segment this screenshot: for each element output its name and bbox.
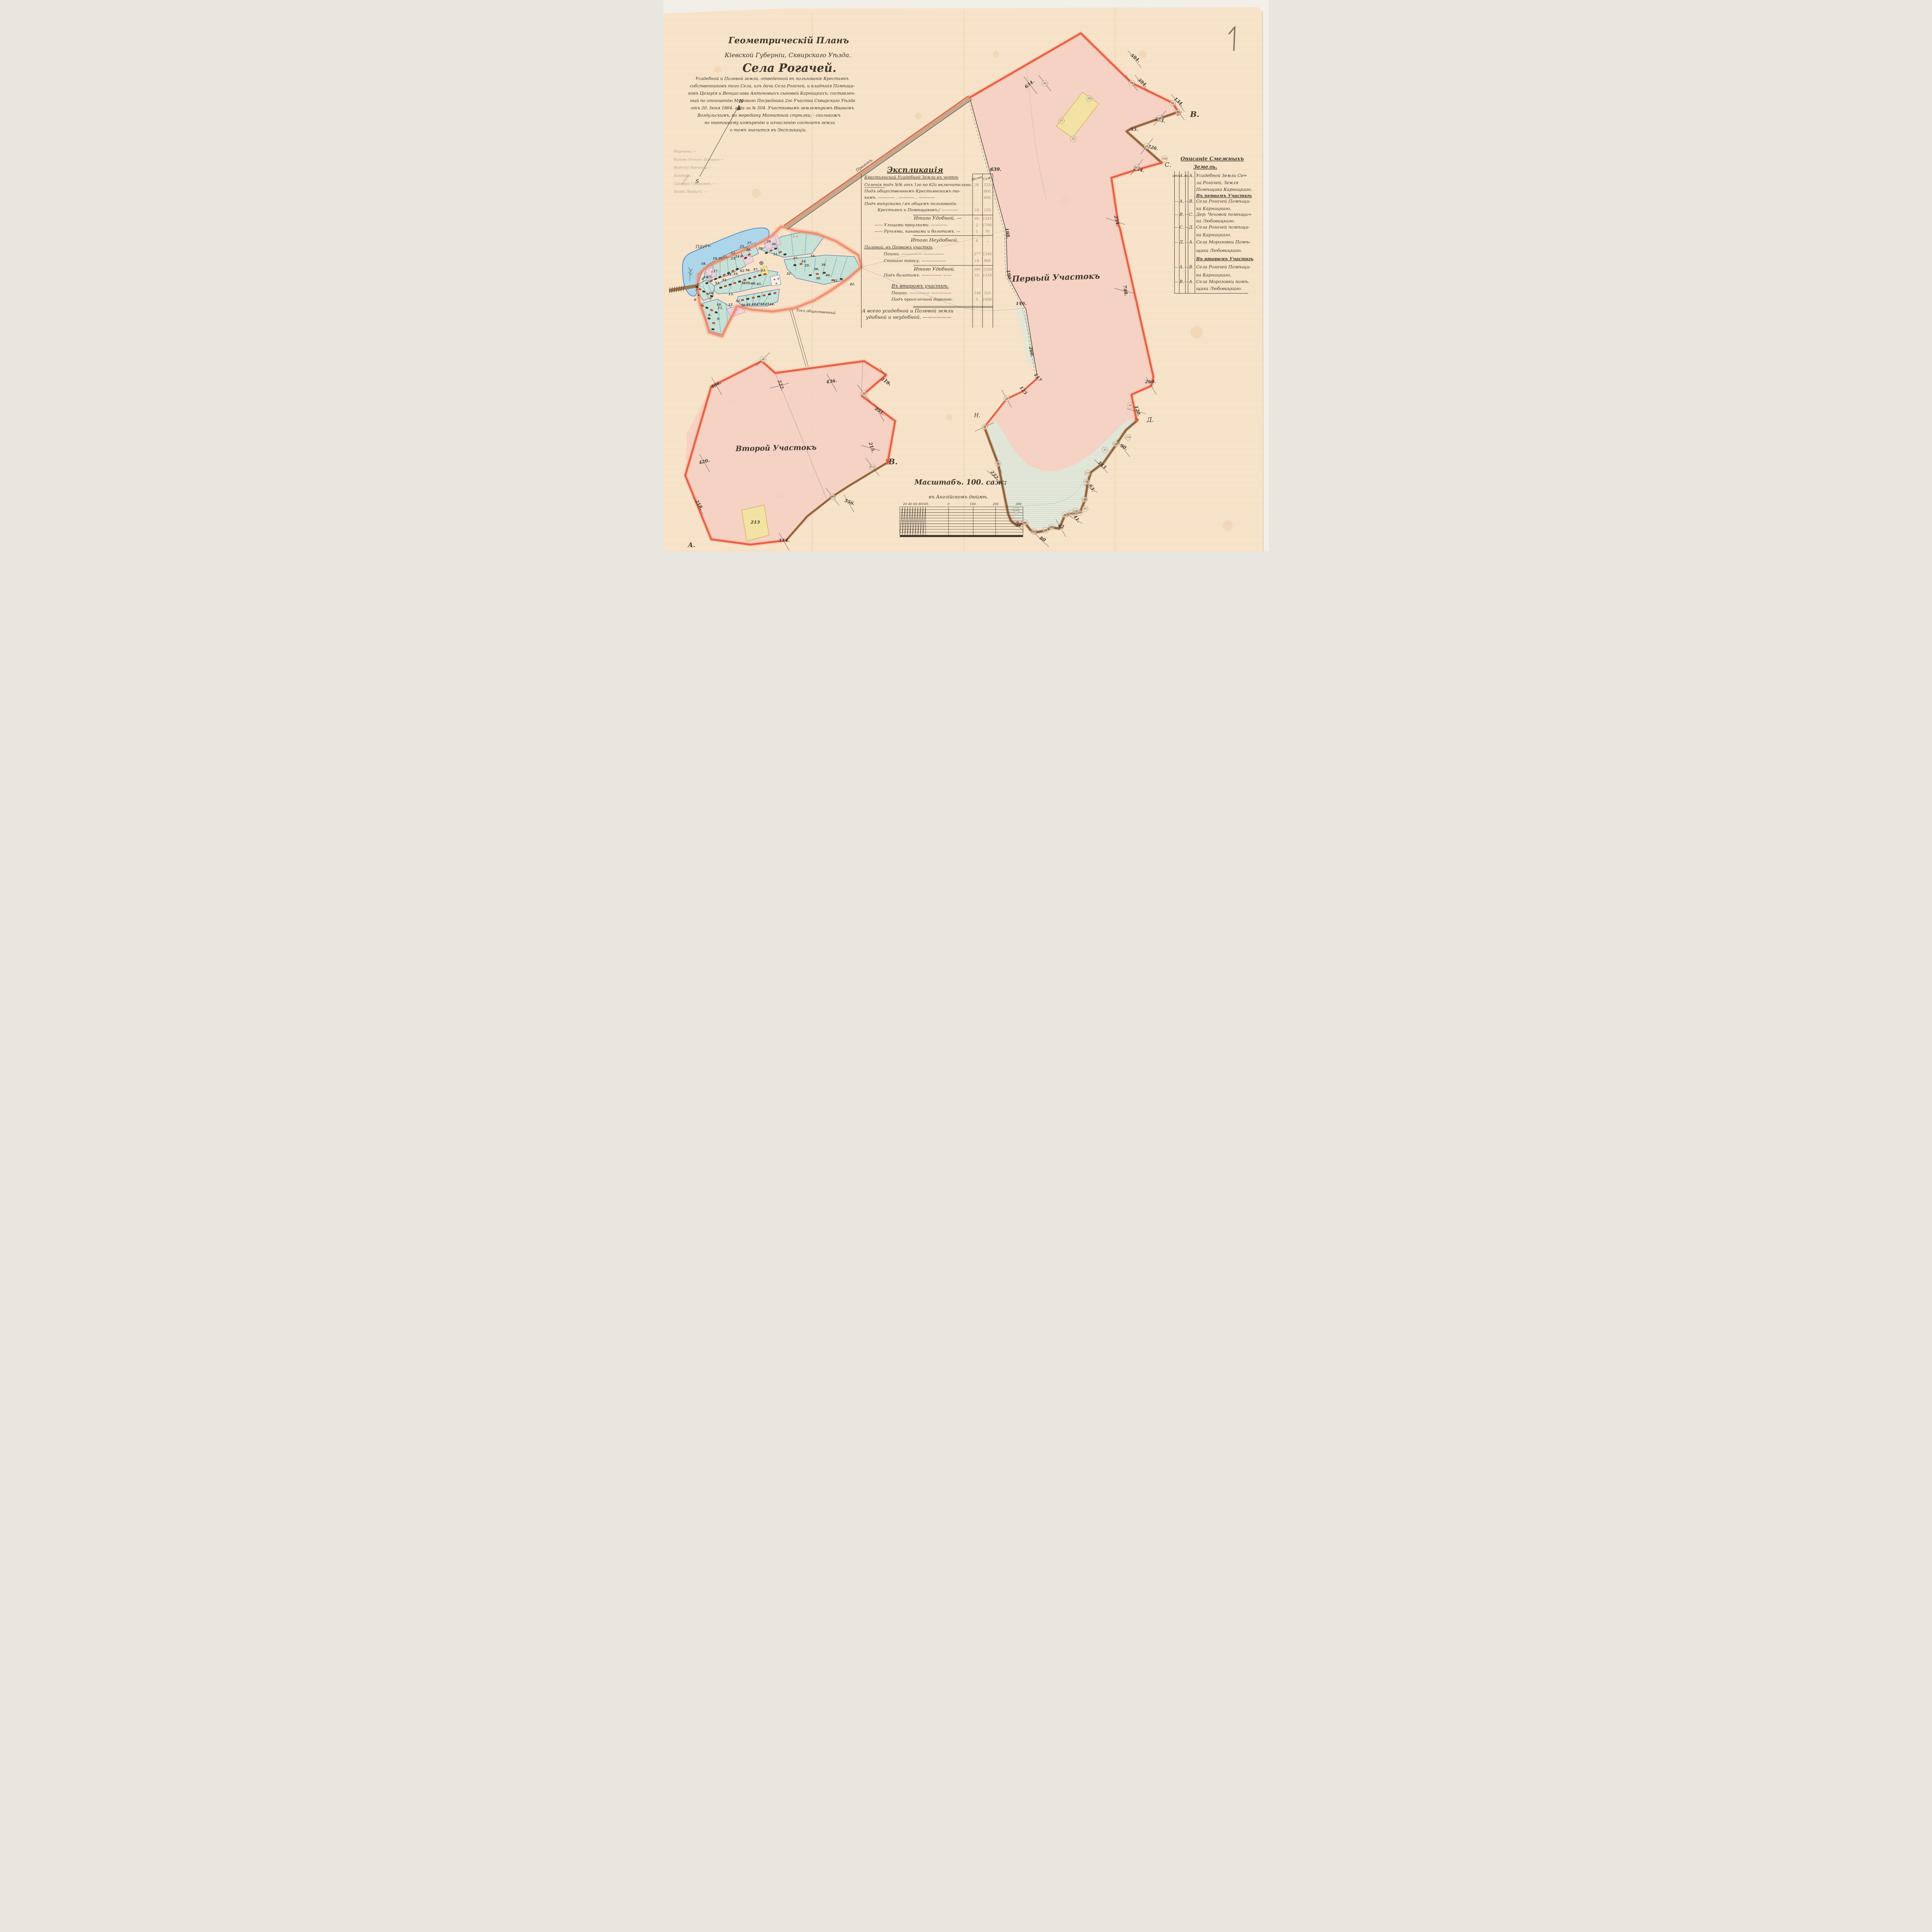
scalebar-title: Масштабъ. 100. саж: <box>914 478 1007 486</box>
vertex-number: 159 <box>1113 442 1118 446</box>
village-parcel-number: 61. <box>757 282 762 286</box>
vertex-number: 155 <box>1126 436 1130 439</box>
vertex-number: 58 <box>1145 145 1148 148</box>
boundary-measurement: 146. <box>1015 301 1026 306</box>
map-label: В. <box>1190 109 1199 119</box>
vertex-number: 78 <box>983 425 986 429</box>
village-parcel-number: 4. <box>697 293 701 297</box>
explication-value-sazhen: 70. <box>985 230 990 234</box>
explication-row-label: Подъ выпусками /.въ общемъ пользованіи <box>864 201 956 206</box>
explication-value-desyatina: 10. <box>975 274 980 278</box>
map-label: С. <box>1165 161 1171 168</box>
scalebar-tick-label: 80 <box>918 502 922 506</box>
vertex-number: 26½ <box>829 495 835 498</box>
title-paragraph-line: Воздульскимъ, по мередіану Магнитной стр… <box>697 113 840 118</box>
title-paragraph-line: ный по отношенію Мирового Посредника 2го… <box>690 98 855 103</box>
map-label: N <box>738 99 743 104</box>
vertex-number: 148 <box>1068 512 1073 515</box>
adjacent-description-line: щика Любовицкаго. <box>1196 286 1242 291</box>
adjacent-boundary-letter: до <box>1184 174 1188 178</box>
map-label: В. <box>888 457 898 466</box>
vertex-number: 163 <box>1014 509 1018 512</box>
church-cross-icon: ✚ <box>760 262 762 265</box>
scalebar-subtitle: въ Англійскомъ дюймѣ. <box>929 494 988 500</box>
village-parcel-number: 39. <box>821 263 827 267</box>
village-parcel-number: 3 <box>695 287 697 291</box>
adjacent-description-line: Села Рогачей Помѣщи- <box>1196 264 1251 269</box>
adjacent-boundary-letter: В. <box>1189 199 1194 204</box>
title-paragraph-line: по нынѣшнему измѣренію и изчисленію сост… <box>704 120 835 125</box>
building-black <box>840 278 843 280</box>
village-parcel-number: 36. <box>814 267 819 271</box>
village-parcel-number: 21. <box>722 255 728 259</box>
adjacent-boundary-letter: Д. <box>1179 240 1184 245</box>
explication-value-desyatina: 2. <box>975 223 979 228</box>
scalebar-tick-label: 40 <box>907 502 912 506</box>
adjacent-boundary-letter: — <box>1174 241 1178 245</box>
vertex-number: 49 <box>1043 529 1047 532</box>
explication-row-label: А всего усадебной и Полевой земли <box>862 308 954 313</box>
title-paragraph-line: отъ 20. Іюня 1864. года за № 504. Участк… <box>691 105 854 111</box>
village-parcel-number: 27. <box>747 241 752 245</box>
village-parcel-number: 24. <box>735 255 740 259</box>
vertex-number: 32 <box>1103 449 1106 452</box>
village-parcel-number: 11. <box>718 306 723 310</box>
adjacent-boundary-letter: С. <box>1189 212 1194 217</box>
vertex-number: 31½ <box>1134 166 1139 169</box>
explication-row-label: Итого Неудобной. <box>910 237 958 243</box>
explication-row-label: Подъ общественнымъ Крестьянскимъ то- <box>864 189 960 194</box>
explication-value-desyatina: 46. <box>974 216 980 221</box>
village-parcel-number: 12. <box>728 303 733 306</box>
map-label: А. <box>687 541 695 549</box>
village-parcel-number: 57. <box>753 267 759 271</box>
scalebar-tick-label: 100. <box>969 502 976 506</box>
village-parcel-number: 33. <box>801 259 806 263</box>
vertex-number: 62 <box>1171 102 1174 105</box>
boundary-measurement: 213 <box>750 519 760 525</box>
village-parcel-number: 14. <box>709 291 714 295</box>
village-parcel-number: 25. <box>739 245 745 248</box>
explication-value-sazhen: 525. <box>984 183 992 187</box>
explication-row-label: Въ второмъ участкѣ. <box>891 283 949 289</box>
explication-row-label: Итого Удобной. <box>913 266 955 272</box>
boundary-measurement: 45. <box>1130 126 1138 132</box>
explication-row-label: Сѣннаго покосу. —————— <box>884 259 946 263</box>
map-canvas: +++ ✚ ××××× × <box>663 0 1269 551</box>
explication-value-sazhen: 120. <box>984 208 992 212</box>
village-parcel-number: 52. <box>715 281 720 285</box>
pencil-note-line: Федоско Новчинка — <box>674 166 712 170</box>
explication-value-desyatina: 1. <box>976 230 979 234</box>
adjacent-boundary-letter: — <box>1184 280 1188 284</box>
village-parcel-number: 51. <box>735 299 741 303</box>
vertex-number: 32 <box>1071 138 1075 141</box>
adjacent-description-line: ка Любовицкаго. <box>1196 219 1235 224</box>
vertex-number: 144 <box>1082 498 1087 501</box>
adjacent-description-line: ка Карницкаго. <box>1196 272 1231 277</box>
explication-row-label: Селенія подъ №№ отъ 1го по 62й включител… <box>864 183 972 187</box>
adjacent-boundary-letter: отъ <box>1172 174 1180 178</box>
map-title-line3: Села Рогачей. <box>742 61 836 75</box>
adjacent-title-line1: Описаніе Смежныхъ <box>1180 156 1244 162</box>
adjacent-boundary-letter: — <box>1174 265 1178 269</box>
map-label: Второй Участокъ <box>735 443 816 453</box>
title-paragraph-line: Усадебной и Полевой земли, отведенной въ… <box>696 76 849 81</box>
village-parcel-number: 50. <box>741 303 746 307</box>
village-parcel-number: 31. <box>773 252 778 256</box>
scalebar-base-band <box>900 535 1023 537</box>
vertex-number: 91½ <box>869 466 875 469</box>
svg-text:+: + <box>775 281 777 285</box>
village-parcel-number: 60. <box>751 281 756 285</box>
adjacent-boundary-letter: А. <box>1179 173 1184 178</box>
adjacent-boundary-letter: В. <box>1179 212 1184 217</box>
adjacent-boundary-letter: — <box>1184 213 1188 217</box>
vertex-number: 52 <box>862 392 865 395</box>
vertex-number: 29 <box>1043 82 1046 85</box>
village-parcel-number: 48. <box>752 302 757 306</box>
building-red <box>831 279 834 281</box>
adjacent-boundary-letter: А. <box>1189 279 1194 284</box>
village-parcel-number: 62 <box>740 269 745 273</box>
village-parcel-number: 9. <box>717 317 720 321</box>
pencil-note-line: Марченка — <box>673 150 697 154</box>
vertex-number: 32 <box>1060 119 1063 122</box>
explication-row-label: Подъ болотомъ. ————— —— <box>883 273 952 278</box>
village-parcel-number: 58 <box>741 281 746 285</box>
explication-row-label: Крестьянской Усадебной Земли въ чертѣ <box>864 175 958 180</box>
village-parcel-number: 18. <box>701 262 706 265</box>
village-parcel-number: 19. <box>713 257 718 260</box>
explication-value-desyatina: 5. <box>976 298 979 302</box>
vertex-number: 119 <box>1085 471 1090 474</box>
adjacent-section-header: Въ первомъ Участкѣ <box>1196 193 1252 198</box>
explication-value-desyatina: 4. <box>975 238 979 243</box>
adjacent-description-line: ка Карницкаго. <box>1196 233 1231 238</box>
vertex-number: 59 <box>1083 507 1086 510</box>
adjacent-boundary-letter: А. <box>1179 199 1184 204</box>
map-sheet: +++ ✚ ××××× × <box>663 0 1269 551</box>
vertex-number: 164 <box>1162 157 1167 160</box>
explication-value-sazhen: 1245. <box>983 216 993 221</box>
explication-value-desyatina: 391 <box>974 267 981 272</box>
boundary-measurement: 92 <box>1058 524 1065 530</box>
svg-text:×: × <box>711 270 713 274</box>
vertex-number: 69 <box>997 462 1000 465</box>
svg-text:+: + <box>773 277 776 281</box>
explication-value-desyatina: 36. <box>975 183 980 187</box>
explication-value-sazhen: 1346. <box>983 252 993 256</box>
explication-row-label: Пашни. ————— ————— <box>891 291 952 296</box>
adjacent-description-line: Села Морозовки Помѣ- <box>1196 240 1250 245</box>
explication-title: Экспликація <box>887 165 943 174</box>
village-parcel-number: 40. <box>825 273 831 277</box>
village-parcel-number: 42. <box>850 282 855 286</box>
village-parcel-number: 6 <box>694 298 696 301</box>
map-label: Д. <box>1146 416 1154 423</box>
explication-value-sazhen: „ <box>986 238 988 243</box>
village-parcel-number: 16. <box>703 275 709 279</box>
explication-row-label: Полевой: въ Первомъ участкѣ <box>864 245 932 250</box>
explication-value-sazhen: 900. <box>984 259 992 263</box>
pencil-note-line: Яковъ Лепдулъ. — <box>673 190 707 194</box>
map-title-line2: Кіевской Губерніи, Сквирскаго Уѣзда. <box>724 51 851 59</box>
vertex-number: 96 <box>1085 480 1088 483</box>
explication-row-label: Крестьянъ и Помѣщиковъ./ ———— <box>877 207 958 212</box>
explication-row-label: Подъ проселочной дорогою. <box>891 297 953 302</box>
village-parcel-number: 22 <box>730 251 735 255</box>
svg-text:+: + <box>777 277 779 281</box>
explication-row-label: —— Улицами проулками. ———— <box>874 223 947 228</box>
building-black <box>809 274 812 276</box>
village-parcel-number: 59. <box>745 281 751 285</box>
village-parcel-number: 17. <box>713 269 718 273</box>
adjacent-boundary-letter: — <box>1184 200 1188 204</box>
explication-value-sazhen: 1600. <box>983 298 993 302</box>
map-label: Н. <box>974 413 980 419</box>
explication-row-label: Пашни. ————— ————— <box>883 252 944 256</box>
scalebar-tick-label: 60 <box>913 502 917 506</box>
village-parcel-number: 38. <box>816 276 821 280</box>
village-parcel-number: 43. <box>760 269 766 272</box>
explication-value-sazhen: 1518. <box>983 274 993 278</box>
village-parcel-number: 32. <box>786 272 792 276</box>
village-parcel-number: 55. <box>733 272 738 276</box>
title-paragraph-line: о томъ значится въ Экспликаціи. <box>730 128 807 133</box>
explication-value-desyatina: 377 <box>974 252 981 256</box>
adjacent-boundary-letter: А. <box>1179 264 1184 269</box>
building-black <box>711 328 714 330</box>
map-label: S <box>695 179 699 184</box>
adjacent-boundary-letter: А. <box>1189 173 1194 178</box>
building-black <box>823 272 826 274</box>
vertex-number: 26 <box>1158 117 1161 120</box>
boundary-measurement: 639. <box>990 167 1001 172</box>
explication-row-label: удобной и неудобной. —————— <box>866 314 951 320</box>
explication-row-label: комъ. ———— . ———— . ———— <box>864 195 935 200</box>
explication-row-label: Итого Удобной. — <box>913 215 961 221</box>
adjacent-description-line: Села Морозовки помѣ. <box>1196 279 1249 284</box>
adjacent-description-line: ла Рогачей, Земля <box>1196 180 1238 185</box>
title-paragraph-line: собственниковъ того Села, изъ дачи Села … <box>690 83 855 88</box>
scalebar-tick-label: 20 <box>902 502 906 506</box>
explication-value-sazhen: 1700. <box>983 223 993 228</box>
boundary-measurement: 114. <box>779 537 789 543</box>
adjacent-boundary-letter: — <box>1184 241 1188 245</box>
adjacent-description-line: Села Рогачей помѣщи- <box>1196 225 1250 230</box>
map-title-line1: Геометрическій Планъ <box>728 36 849 46</box>
adjacent-boundary-letter: Д. <box>1188 225 1194 230</box>
explication-row-label: —— Ручьями, канавами и болотомъ. — <box>874 229 961 234</box>
adjacent-description-line: Помѣщика Карницкаго. <box>1196 187 1252 192</box>
vertex-number: 34 <box>1063 514 1066 517</box>
explication-value-sazhen: 310. <box>984 291 992 296</box>
vertex-number: 116 <box>1077 511 1082 514</box>
village-parcel-number: 8. <box>708 313 711 317</box>
adjacent-boundary-letter: — <box>1174 280 1178 284</box>
vertex-number: 59 <box>1087 97 1090 100</box>
explication-value-sazhen: 2246 <box>983 267 992 272</box>
village-parcel-number: 53. <box>722 278 727 282</box>
vertex-number: 38 <box>761 358 764 361</box>
adjacent-description-line: щика Любовицкаго. <box>1196 248 1242 253</box>
vertex-number: 78 <box>1130 82 1133 85</box>
adjacent-boundary-letter: — <box>1174 226 1178 230</box>
scalebar-tick-label: 200 <box>992 502 998 506</box>
building-red <box>816 273 819 275</box>
explication-value-desyatina: 146 <box>974 291 981 296</box>
adjacent-boundary-letter: — <box>1174 200 1178 204</box>
adjacent-boundary-letter: — <box>1174 213 1178 217</box>
vertex-number: 88 <box>1177 111 1180 114</box>
vertex-number: 33 <box>1005 397 1008 400</box>
scalebar-tick-label: 0 <box>947 502 949 506</box>
village-parcel-number: 56. <box>745 268 751 272</box>
village-parcel-number: 35. <box>804 264 810 267</box>
vertex-number: 58 <box>1128 404 1131 407</box>
village-parcel-number: 28. <box>758 247 764 250</box>
village-parcel-number: 37. <box>793 256 798 260</box>
village-parcel-number: 1. <box>697 282 700 286</box>
pencil-note-line: Кузьма Остапъ Шовгунъ — <box>673 158 724 162</box>
adjacent-boundary-letter: С. <box>1179 225 1184 230</box>
boundary-measurement: 260. <box>1145 379 1156 384</box>
village-parcel-number: 5 <box>709 297 711 301</box>
adjacent-description-line: Дер: Чеховой помѣщи= <box>1196 212 1251 217</box>
explication-value-desyatina: 10. <box>975 208 980 212</box>
vertex-number: 135½ <box>1030 530 1037 533</box>
village-parcel-number: 34. <box>810 254 816 258</box>
svg-text:× ×: × × <box>792 235 798 238</box>
explication-value-sazhen: 600. <box>984 189 992 194</box>
vertex-number: 164 <box>1049 526 1054 529</box>
village-parcel-number: 30. <box>771 242 777 246</box>
adjacent-boundary-letter: В. <box>1179 279 1184 284</box>
adjacent-boundary-letter: — <box>1184 226 1188 230</box>
adjacent-title-line2: Земель. <box>1193 164 1217 170</box>
explication-value-desyatina: 14. <box>975 259 980 263</box>
vertex-number: 86 <box>1023 521 1026 524</box>
scalebar-tick-label: 300. <box>1015 502 1022 506</box>
adjacent-boundary-letter: — <box>1184 265 1188 269</box>
scalebar-tick-label: 100. <box>922 502 929 506</box>
adjacent-boundary-letter: А. <box>1189 240 1194 245</box>
village-parcel-number: 29 <box>766 240 771 243</box>
adjacent-description-line: Усадебной Земли Се= <box>1196 173 1247 178</box>
title-paragraph-line: ковъ Цезарія и Венцислава Антоновыхъ сын… <box>688 91 855 96</box>
adjacent-section-header: Въ второмъ Участкѣ <box>1196 256 1253 261</box>
adjacent-description-line: ка Карницкаго. <box>1196 206 1231 211</box>
pencil-note-line: Григорій Гридасюкъ. — <box>673 182 716 186</box>
village-parcel-number: 41. <box>833 279 839 282</box>
village-parcel-number: 26. <box>745 248 751 252</box>
village-parcel-number: 13. <box>728 292 734 296</box>
explication-value-sazhen: 600. <box>984 196 992 200</box>
village-parcel-number: 49. <box>746 303 751 306</box>
adjacent-boundary-letter: В. <box>1189 264 1194 269</box>
adjacent-description-line: Села Рогачей Помѣщи- <box>1196 199 1251 204</box>
